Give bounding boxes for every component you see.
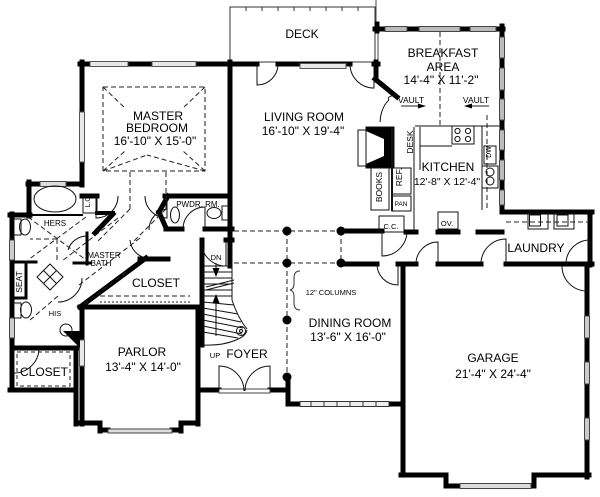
svg-text:HIS: HIS bbox=[49, 309, 62, 318]
svg-text:BATH: BATH bbox=[91, 259, 112, 268]
svg-text:DESK: DESK bbox=[405, 130, 415, 153]
svg-text:13'-6" X 16'-0": 13'-6" X 16'-0" bbox=[310, 330, 386, 344]
svg-text:KITCHEN: KITCHEN bbox=[422, 160, 475, 174]
svg-text:21'-4" X 24'-4": 21'-4" X 24'-4" bbox=[455, 367, 531, 381]
svg-text:BOOKS: BOOKS bbox=[374, 172, 384, 203]
svg-text:LAUNDRY: LAUNDRY bbox=[507, 241, 564, 255]
svg-text:PAN: PAN bbox=[395, 201, 408, 208]
svg-text:GARAGE: GARAGE bbox=[467, 351, 518, 365]
svg-text:PWDR. RM.: PWDR. RM. bbox=[176, 200, 220, 209]
svg-text:DW: DW bbox=[486, 146, 493, 158]
svg-text:12'-8" X 12'-4": 12'-8" X 12'-4" bbox=[414, 176, 481, 188]
svg-text:16'-10" X 19'-4": 16'-10" X 19'-4" bbox=[262, 124, 344, 138]
svg-text:CLOSET: CLOSET bbox=[20, 365, 69, 379]
svg-text:DN: DN bbox=[211, 253, 222, 262]
svg-text:PARLOR: PARLOR bbox=[118, 345, 167, 359]
svg-text:16'-10" X 15'-0": 16'-10" X 15'-0" bbox=[114, 134, 196, 148]
svg-text:UP: UP bbox=[210, 351, 220, 360]
svg-text:FOYER: FOYER bbox=[226, 347, 268, 361]
svg-text:14'-4" X 11'-2": 14'-4" X 11'-2" bbox=[404, 73, 479, 87]
svg-text:SEAT: SEAT bbox=[14, 271, 24, 293]
svg-text:HERS: HERS bbox=[44, 219, 66, 228]
svg-text:VAULT: VAULT bbox=[463, 95, 489, 105]
svg-text:REF.: REF. bbox=[394, 168, 404, 186]
svg-text:AREA: AREA bbox=[427, 60, 460, 74]
svg-text:DECK: DECK bbox=[285, 27, 318, 41]
svg-text:12" COLUMNS: 12" COLUMNS bbox=[306, 288, 357, 297]
svg-text:LIVING ROOM: LIVING ROOM bbox=[264, 110, 344, 124]
svg-text:CLOSET: CLOSET bbox=[132, 276, 181, 290]
svg-text:BEDROOM: BEDROOM bbox=[126, 121, 188, 135]
svg-text:OV.: OV. bbox=[441, 219, 453, 228]
svg-text:VAULT: VAULT bbox=[398, 95, 424, 105]
svg-text:BREAKFAST: BREAKFAST bbox=[408, 46, 479, 60]
svg-text:DINING ROOM: DINING ROOM bbox=[309, 316, 392, 330]
svg-text:13'-4" X 14'-0": 13'-4" X 14'-0" bbox=[105, 360, 181, 374]
svg-text:L.C.: L.C. bbox=[85, 195, 92, 208]
svg-text:C.C.: C.C. bbox=[384, 222, 399, 231]
